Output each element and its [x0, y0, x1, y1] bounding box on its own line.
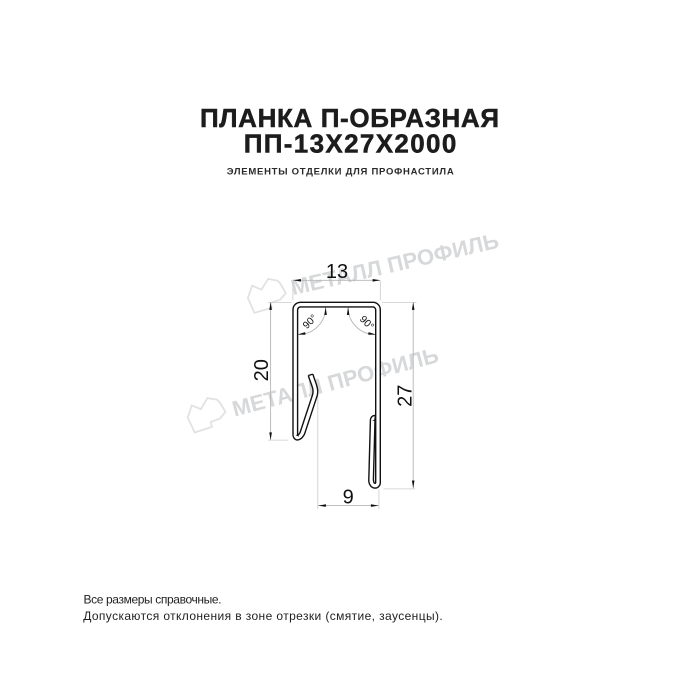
svg-text:20: 20: [251, 359, 273, 381]
svg-text:ЭЛЕМЕНТЫ ОТДЕЛКИ ДЛЯ ПРОФНАСТИ: ЭЛЕМЕНТЫ ОТДЕЛКИ ДЛЯ ПРОФНАСТИЛА: [227, 167, 454, 178]
svg-text:27: 27: [395, 385, 417, 407]
svg-text:Все размеры справочные.: Все размеры справочные.: [84, 593, 222, 607]
svg-text:Допускаются отклонения в зоне: Допускаются отклонения в зоне отрезки (с…: [83, 609, 443, 623]
svg-text:МЕТАЛЛ ПРОФИЛЬ: МЕТАЛЛ ПРОФИЛЬ: [289, 228, 502, 300]
svg-text:90°: 90°: [301, 313, 320, 332]
svg-text:13: 13: [326, 261, 348, 283]
svg-text:9: 9: [343, 486, 354, 508]
svg-text:ПП-13Х27Х2000: ПП-13Х27Х2000: [244, 129, 457, 159]
